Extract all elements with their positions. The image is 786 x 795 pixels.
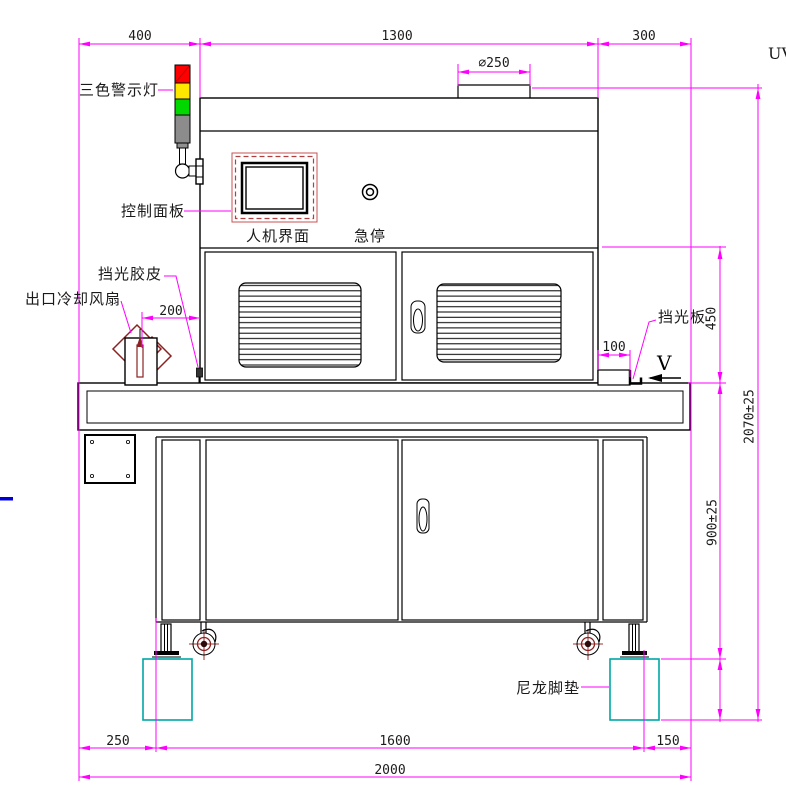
- dim-bottom-mid: 1600: [370, 735, 420, 748]
- dim-lower-section: 900±25: [707, 491, 720, 555]
- dim-top-mid: 1300: [367, 30, 427, 43]
- dim-top-right: 300: [619, 30, 669, 43]
- dim-plate-gap: 100: [594, 341, 634, 354]
- warning-light-tower: [175, 65, 203, 184]
- dim-bottom-total: 2000: [363, 764, 417, 777]
- label-warning-light: 三色警示灯: [79, 82, 159, 98]
- label-outlet-fan: 出口冷却风扇: [25, 291, 119, 307]
- dim-fan-gap: 200: [151, 305, 191, 318]
- lower-door-left: [206, 440, 398, 620]
- corner-text-uv: UV: [768, 46, 786, 62]
- light-plate: [630, 370, 641, 384]
- lower-door-right: [402, 440, 598, 620]
- label-control-panel: 控制面板: [121, 203, 183, 219]
- label-nylon-pad: 尼龙脚垫: [516, 680, 578, 696]
- caster-right: [573, 622, 603, 660]
- drawing-geometry: [0, 0, 786, 795]
- wall-bracket: [196, 159, 203, 184]
- lamp-base: [175, 115, 190, 143]
- dim-bottom-left: 250: [96, 735, 140, 748]
- caster-left: [189, 622, 219, 660]
- label-hmi: 人机界面: [246, 228, 310, 244]
- view-direction-arrow: [648, 374, 681, 382]
- label-light-rubber: 挡光胶皮: [98, 266, 160, 282]
- dim-upper-section: 450: [706, 299, 719, 339]
- louver-vent-left: [239, 283, 361, 367]
- dim-top-left: 400: [115, 30, 165, 43]
- dim-bottom-right: 150: [646, 735, 690, 748]
- dim-duct-diameter: ∅250: [464, 57, 524, 70]
- junction-box: [85, 435, 135, 483]
- leader-outlet-fan: [121, 301, 131, 333]
- lower-right-panel: [603, 440, 643, 620]
- lower-left-panel: [162, 440, 200, 620]
- lamp-yellow: [175, 83, 190, 99]
- mount-ball-joint: [176, 164, 190, 178]
- nylon-pad-left: [143, 659, 192, 720]
- exit-step: [598, 370, 630, 385]
- lower-door-handle: [417, 499, 429, 533]
- view-marker-v: V: [657, 353, 671, 373]
- lower-cabinet: [156, 437, 647, 622]
- blue-mark: [0, 497, 13, 501]
- nylon-pad-right: [610, 659, 659, 720]
- louver-vent-right: [437, 284, 561, 362]
- lamp-green: [175, 99, 190, 115]
- leader-light-plate: [633, 320, 656, 379]
- dim-total-height: 2070±25: [744, 381, 757, 453]
- label-estop: 急停: [352, 228, 388, 244]
- leveling-leg-right: [620, 624, 649, 657]
- cad-drawing-canvas: 400 1300 300 ∅250 UV 三色警示灯 控制面板 人机界面 急停 …: [0, 0, 786, 795]
- exhaust-duct: [458, 85, 530, 98]
- label-light-plate: 挡光板: [658, 309, 706, 325]
